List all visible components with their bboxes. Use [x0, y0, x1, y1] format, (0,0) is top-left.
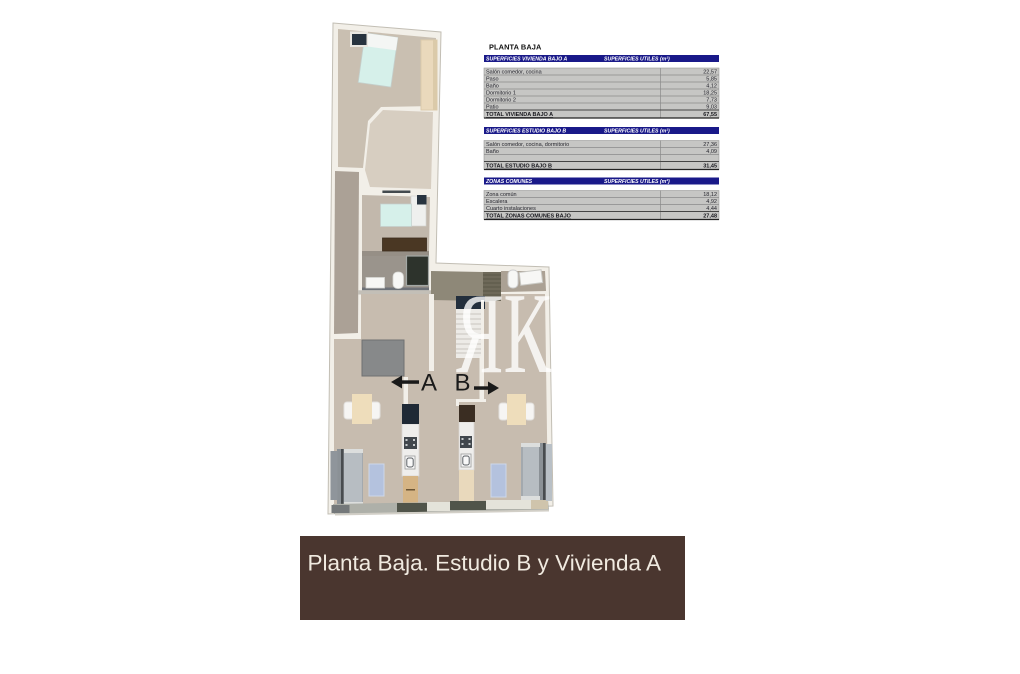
svg-text:B: B [455, 370, 471, 397]
svg-text:Dormitorio 1: Dormitorio 1 [486, 91, 516, 97]
svg-text:PLANTA BAJA: PLANTA BAJA [489, 43, 542, 52]
svg-text:TOTAL VIVIENDA BAJO A: TOTAL VIVIENDA BAJO A [486, 112, 553, 118]
svg-text:A: A [421, 370, 437, 397]
svg-text:7,73: 7,73 [706, 98, 717, 104]
svg-text:TOTAL ESTUDIO BAJO B: TOTAL ESTUDIO BAJO B [486, 164, 552, 170]
svg-text:Planta Baja. Estudio B y Vivie: Planta Baja. Estudio B y Vivienda A [308, 551, 662, 576]
svg-text:Baño: Baño [486, 149, 499, 155]
svg-text:Escalera: Escalera [486, 199, 508, 205]
svg-text:18,12: 18,12 [703, 192, 717, 198]
svg-text:4,12: 4,12 [706, 84, 717, 90]
svg-text:SUPERFICIES UTILES (m²): SUPERFICIES UTILES (m²) [604, 128, 670, 134]
svg-text:5,85: 5,85 [706, 77, 717, 83]
svg-text:18,25: 18,25 [703, 91, 717, 97]
svg-text:67,55: 67,55 [703, 112, 717, 118]
svg-text:4,44: 4,44 [706, 206, 717, 212]
svg-text:27,36: 27,36 [703, 142, 717, 148]
svg-text:Baño: Baño [486, 84, 499, 90]
svg-text:22,57: 22,57 [703, 70, 717, 76]
svg-text:Patio: Patio [486, 105, 499, 111]
svg-text:Cuarto instalaciones: Cuarto instalaciones [486, 206, 536, 212]
svg-text:SUPERFICIES UTILES (m²): SUPERFICIES UTILES (m²) [604, 179, 670, 185]
svg-text:Dormitorio 2: Dormitorio 2 [486, 98, 516, 104]
svg-text:31,45: 31,45 [703, 164, 717, 170]
svg-text:9,03: 9,03 [706, 105, 717, 111]
svg-text:Zona común: Zona común [486, 192, 517, 198]
svg-text:ZONAS COMUNES: ZONAS COMUNES [485, 179, 533, 185]
svg-text:4,92: 4,92 [706, 199, 717, 205]
svg-text:SUPERFICIES ESTUDIO BAJO B: SUPERFICIES ESTUDIO BAJO B [486, 128, 566, 134]
svg-text:TOTAL ZONAS COMUNES BAJO: TOTAL ZONAS COMUNES BAJO [486, 214, 572, 220]
svg-text:Salón comedor, cocina: Salón comedor, cocina [486, 70, 543, 76]
svg-text:Paso: Paso [486, 77, 499, 83]
svg-text:SUPERFICIES UTILES (m²): SUPERFICIES UTILES (m²) [604, 56, 670, 62]
svg-text:SUPERFICIES VIVIENDA BAJO A: SUPERFICIES VIVIENDA BAJO A [486, 56, 567, 62]
svg-text:27,48: 27,48 [703, 214, 717, 220]
svg-text:Salón comedor, cocina, dormito: Salón comedor, cocina, dormitorio [486, 142, 569, 148]
svg-text:4,09: 4,09 [706, 149, 717, 155]
